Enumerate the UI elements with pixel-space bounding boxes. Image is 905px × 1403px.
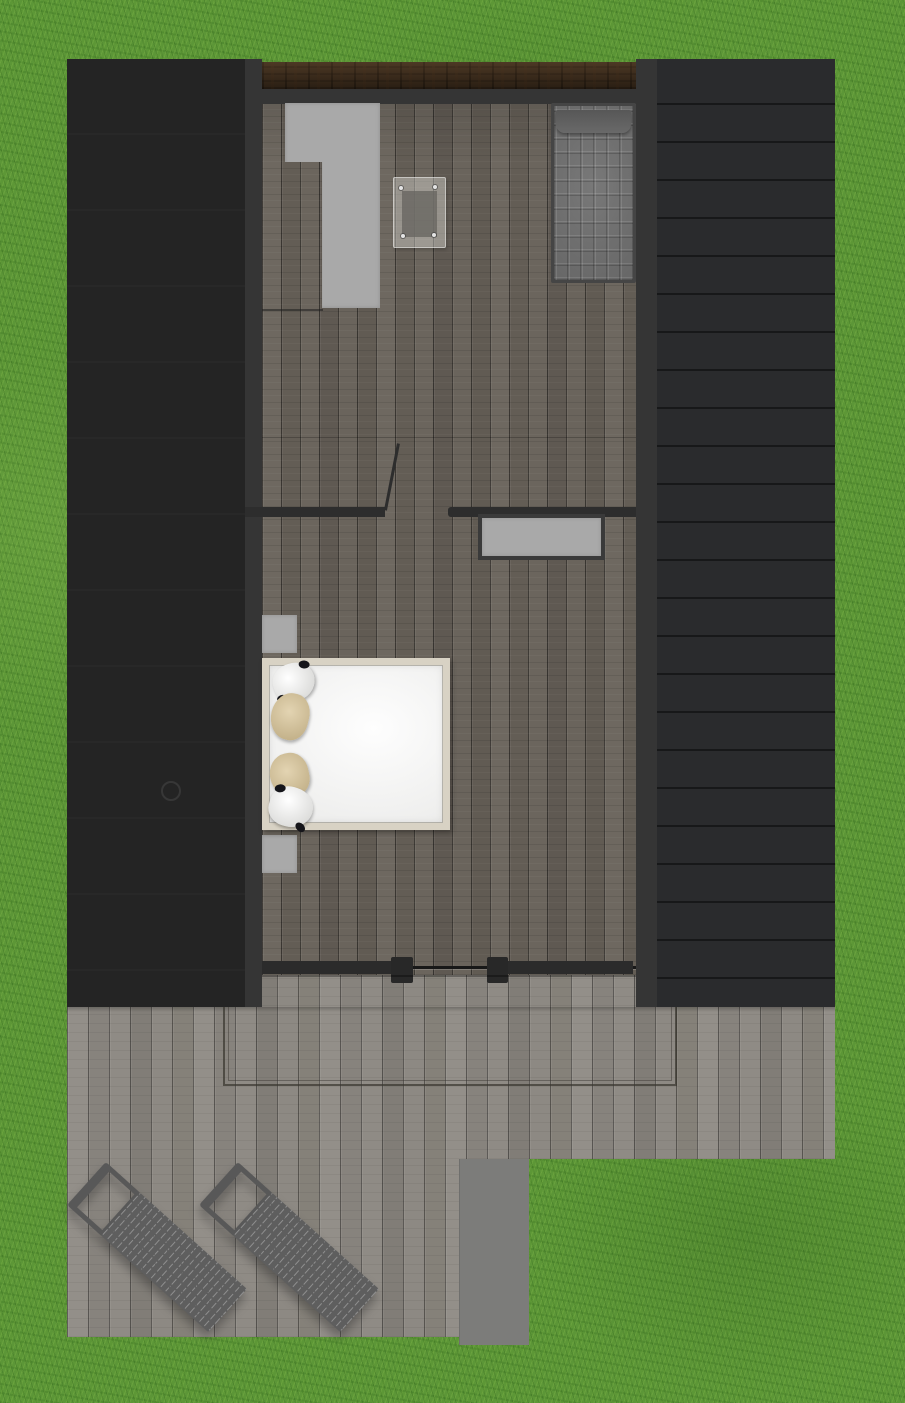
pillow-dot <box>298 660 310 669</box>
partition-wall-left <box>245 507 385 517</box>
deck-outline <box>223 1007 677 1086</box>
lawn <box>0 0 905 1403</box>
screw-icon <box>432 233 436 237</box>
door-track-shadow <box>262 975 636 977</box>
ridge-beam <box>262 62 636 89</box>
single-bed <box>551 103 636 283</box>
screw-icon <box>433 185 437 189</box>
nightstand-bottom <box>262 835 297 873</box>
wall-right <box>636 59 657 1007</box>
wall-left <box>245 59 262 1007</box>
glass-table <box>393 177 446 248</box>
sliding-door-panel-right <box>508 961 633 974</box>
pillow-tan <box>266 689 314 744</box>
pillow-dot <box>274 784 286 793</box>
screw-icon <box>399 186 403 190</box>
deck-outline-inner-line <box>228 1007 672 1081</box>
roof-panel-left <box>67 59 245 1007</box>
double-bed <box>262 658 450 830</box>
pillow-white <box>264 782 317 833</box>
screw-icon <box>401 234 405 238</box>
glass-table-top <box>402 191 437 237</box>
wall-shelf <box>478 514 605 560</box>
sliding-door-post <box>391 957 413 983</box>
nightstand-top <box>262 615 297 653</box>
floor-seam <box>262 437 636 438</box>
wall-top <box>262 88 636 104</box>
single-bed-pillow <box>556 110 631 133</box>
floor-seam-partial <box>262 309 323 311</box>
roof-panel-right <box>657 59 835 1007</box>
roof-vent-icon <box>161 781 181 801</box>
sliding-door-post <box>487 957 508 983</box>
sliding-door-panel-left <box>262 961 393 974</box>
deck-step <box>459 1159 529 1345</box>
